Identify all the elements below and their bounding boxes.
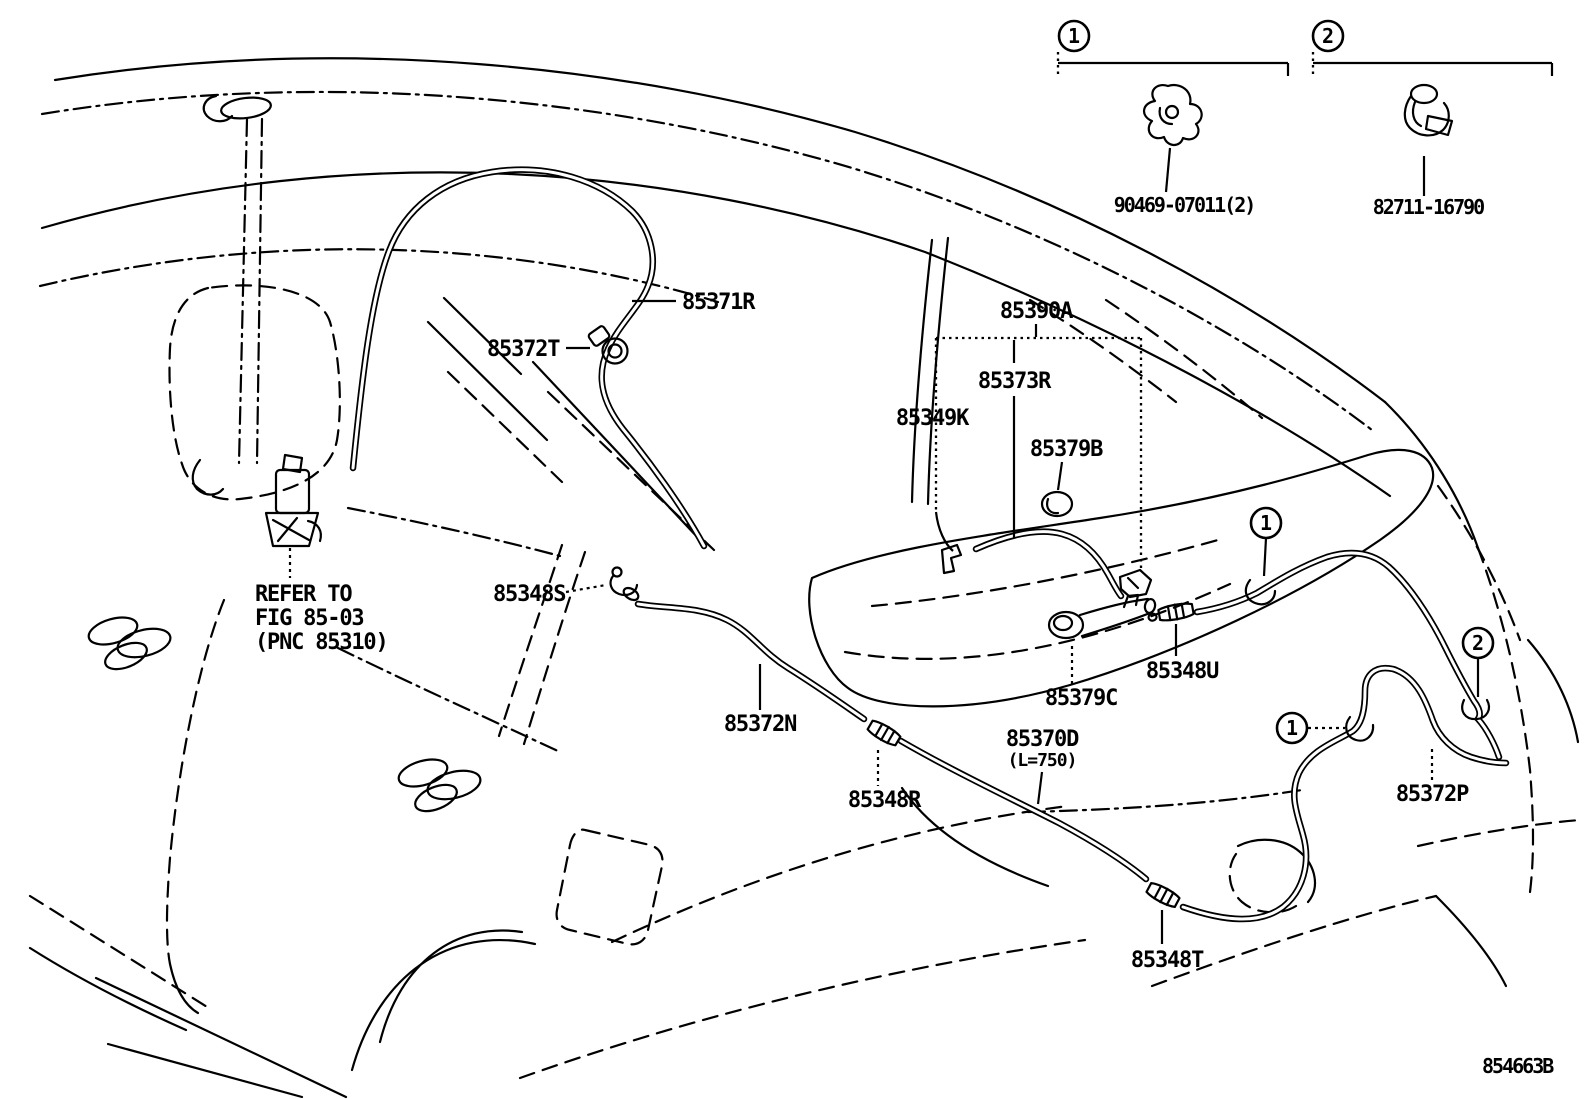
- legend-item-2: 2 82711-16790: [1313, 21, 1552, 219]
- refer-note-line2: FIG 85-03: [255, 606, 363, 631]
- legend-1-number: 1: [1068, 24, 1080, 48]
- leader-85379B: [1058, 462, 1062, 490]
- joint-85348R-icon: [866, 719, 901, 748]
- washer-tank-icon: [170, 95, 340, 499]
- part-label-85348T: 85348T: [1131, 948, 1204, 973]
- part-label-85372N: 85372N: [724, 712, 796, 737]
- part-label-85390A: 85390A: [1000, 299, 1073, 324]
- joint-85348T-icon: [1145, 881, 1180, 909]
- legend-2-number: 2: [1322, 24, 1334, 48]
- part-label-85372T: 85372T: [487, 337, 560, 362]
- car-outline: [30, 58, 1580, 1097]
- hose-85373R: [976, 532, 1121, 596]
- nozzle-85379C-icon: [1049, 595, 1156, 638]
- legend-item-1: 1 90469-07011(2): [1058, 21, 1288, 217]
- leader-85370D: [1038, 772, 1042, 804]
- svg-text:2: 2: [1472, 631, 1484, 655]
- parts-diagram-canvas: REFER TO FIG 85-03 (PNC 85310): [0, 0, 1592, 1099]
- part-label-85348S: 85348S: [493, 582, 565, 607]
- part-label-85379B: 85379B: [1030, 437, 1103, 462]
- refer-note-line3: (PNC 85310): [255, 630, 388, 655]
- nozzle-gate-icon: [1120, 570, 1151, 597]
- svg-text:1: 1: [1286, 716, 1298, 740]
- legend-2-part-number: 82711-16790: [1373, 195, 1484, 219]
- part-label-85371R: 85371R: [682, 290, 756, 315]
- part-label-85348R: 85348R: [848, 788, 922, 813]
- svg-text:1: 1: [1260, 511, 1272, 535]
- part-label-85348U: 85348U: [1146, 659, 1219, 684]
- drawing-number: 854663B: [1482, 1054, 1554, 1078]
- door-handle-squiggle-lower: [396, 755, 484, 817]
- hose-gate-right: [1197, 553, 1499, 757]
- parts-diagram-figure: REFER TO FIG 85-03 (PNC 85310): [0, 0, 1592, 1099]
- clamp-85348S-icon: [611, 568, 641, 603]
- part-label-85370D: 85370D: [1006, 727, 1079, 752]
- part-label-85349K: 85349K: [896, 406, 970, 431]
- door-handle-squiggle-upper: [86, 613, 174, 675]
- clip-type1-icon: [1144, 85, 1202, 145]
- grommet-85379B-icon: [1042, 492, 1072, 516]
- washer-pump-icon: [266, 455, 321, 546]
- refer-note-line1: REFER TO: [255, 582, 352, 607]
- hose-85372N: [638, 604, 864, 719]
- callout-1-upper-right: 1: [1251, 508, 1281, 576]
- part-label-85370D-length: (L=750): [1008, 750, 1077, 771]
- clip-type2-icon: [1405, 85, 1452, 135]
- part-label-85379C: 85379C: [1045, 686, 1117, 711]
- legend-1-part-number: 90469-07011(2): [1114, 193, 1255, 217]
- part-label-85372P: 85372P: [1396, 782, 1469, 807]
- part-label-85373R: 85373R: [978, 369, 1052, 394]
